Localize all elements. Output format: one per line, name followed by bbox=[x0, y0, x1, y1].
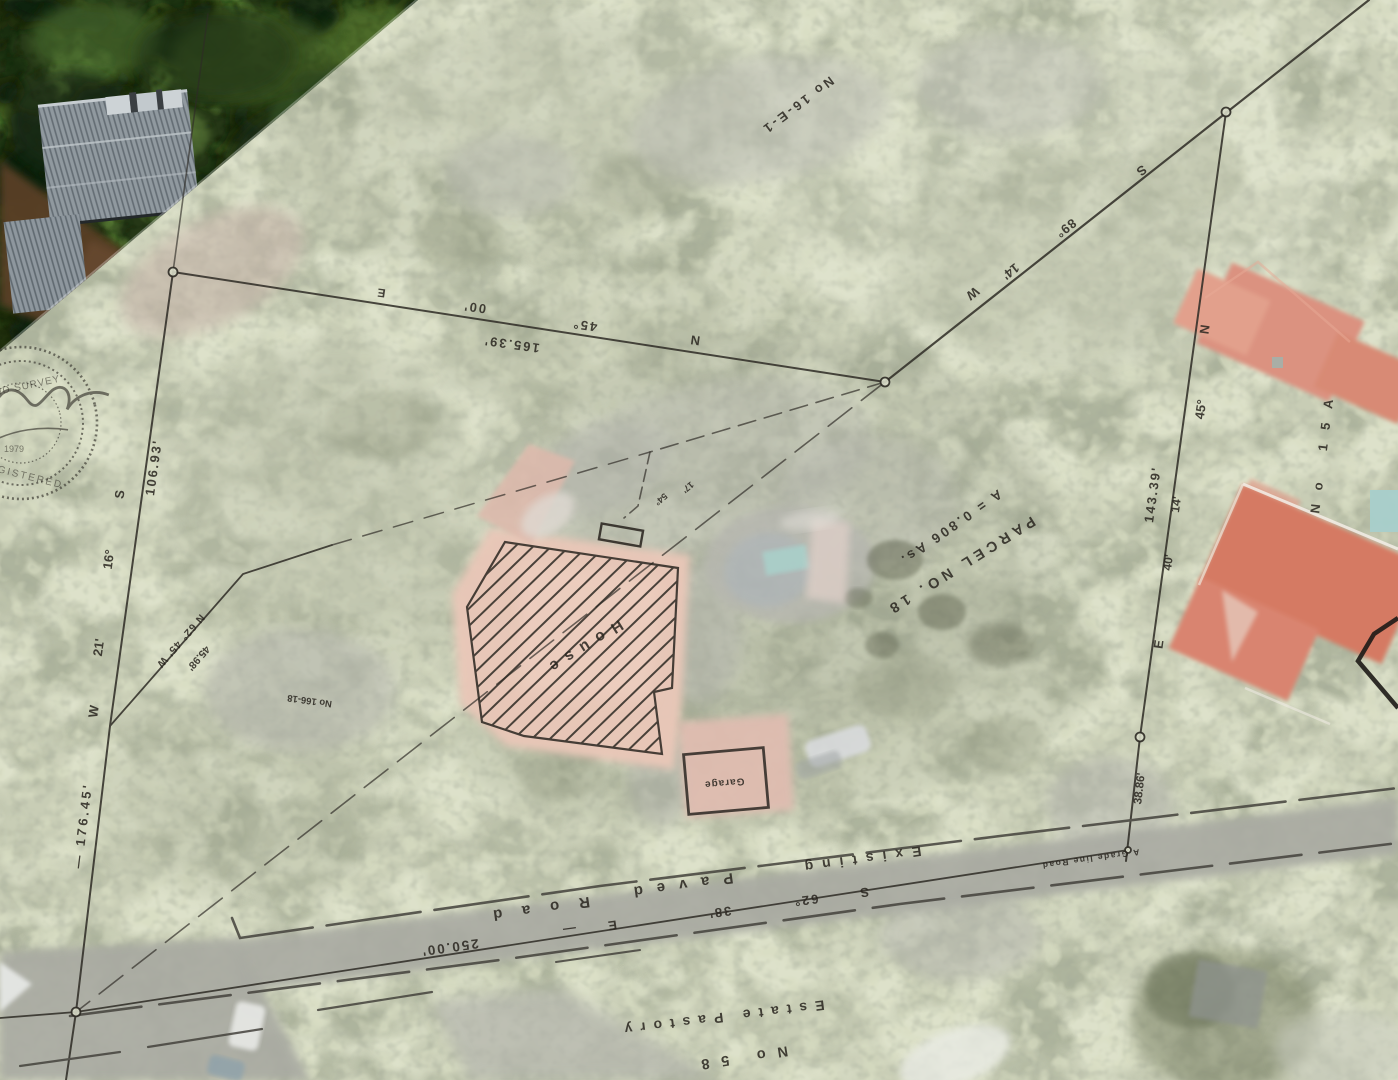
svg-text:1979: 1979 bbox=[4, 444, 24, 454]
svg-text:21': 21' bbox=[90, 638, 107, 657]
svg-text:—: — bbox=[562, 921, 577, 938]
svg-text:40': 40' bbox=[1160, 553, 1176, 571]
svg-text:16°: 16° bbox=[100, 549, 118, 571]
svg-text:45°: 45° bbox=[1192, 399, 1210, 421]
svg-text:14': 14' bbox=[1168, 495, 1184, 513]
